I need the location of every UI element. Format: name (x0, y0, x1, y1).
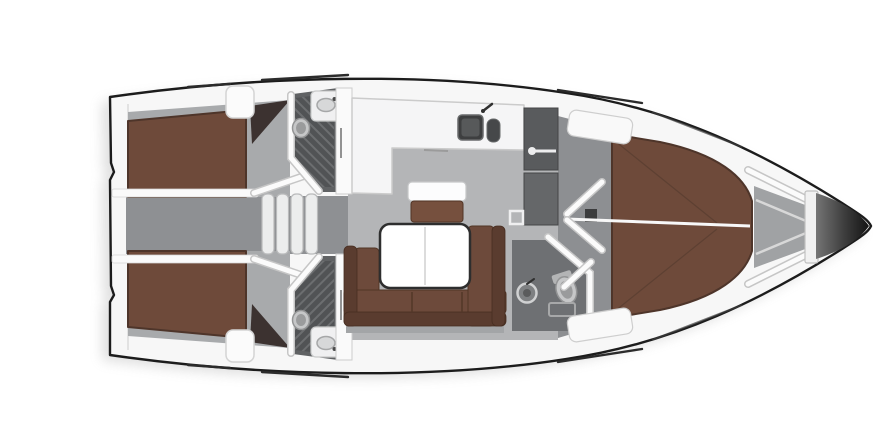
stool-top (408, 182, 466, 201)
sofa-right-seat (468, 226, 494, 326)
sofa-right-back (492, 226, 505, 326)
floorplan-canvas (0, 0, 890, 446)
locker-upper (524, 108, 558, 170)
double-berth (128, 110, 246, 197)
washbasin (317, 99, 335, 112)
companionway-step (277, 194, 289, 254)
companionway-step (291, 194, 303, 254)
stool-cushion (411, 201, 463, 222)
companionway-step (306, 194, 318, 254)
galley-sink-basin (462, 119, 480, 137)
toilet-bowl (296, 122, 306, 134)
corridor-wall (112, 255, 258, 263)
companionway-step (262, 194, 274, 254)
corridor-wall (112, 189, 258, 197)
galley-sink-small (487, 119, 500, 142)
locker-lower (524, 173, 558, 225)
towel-rail-knob (528, 147, 536, 155)
sofa-base (346, 326, 504, 333)
head-door (336, 88, 352, 194)
washbasin-drain (523, 289, 531, 297)
cabinet-handle (424, 150, 448, 151)
boat-floorplan (0, 0, 890, 446)
sofa-bottom-back (344, 312, 506, 326)
deck-step (226, 86, 254, 118)
